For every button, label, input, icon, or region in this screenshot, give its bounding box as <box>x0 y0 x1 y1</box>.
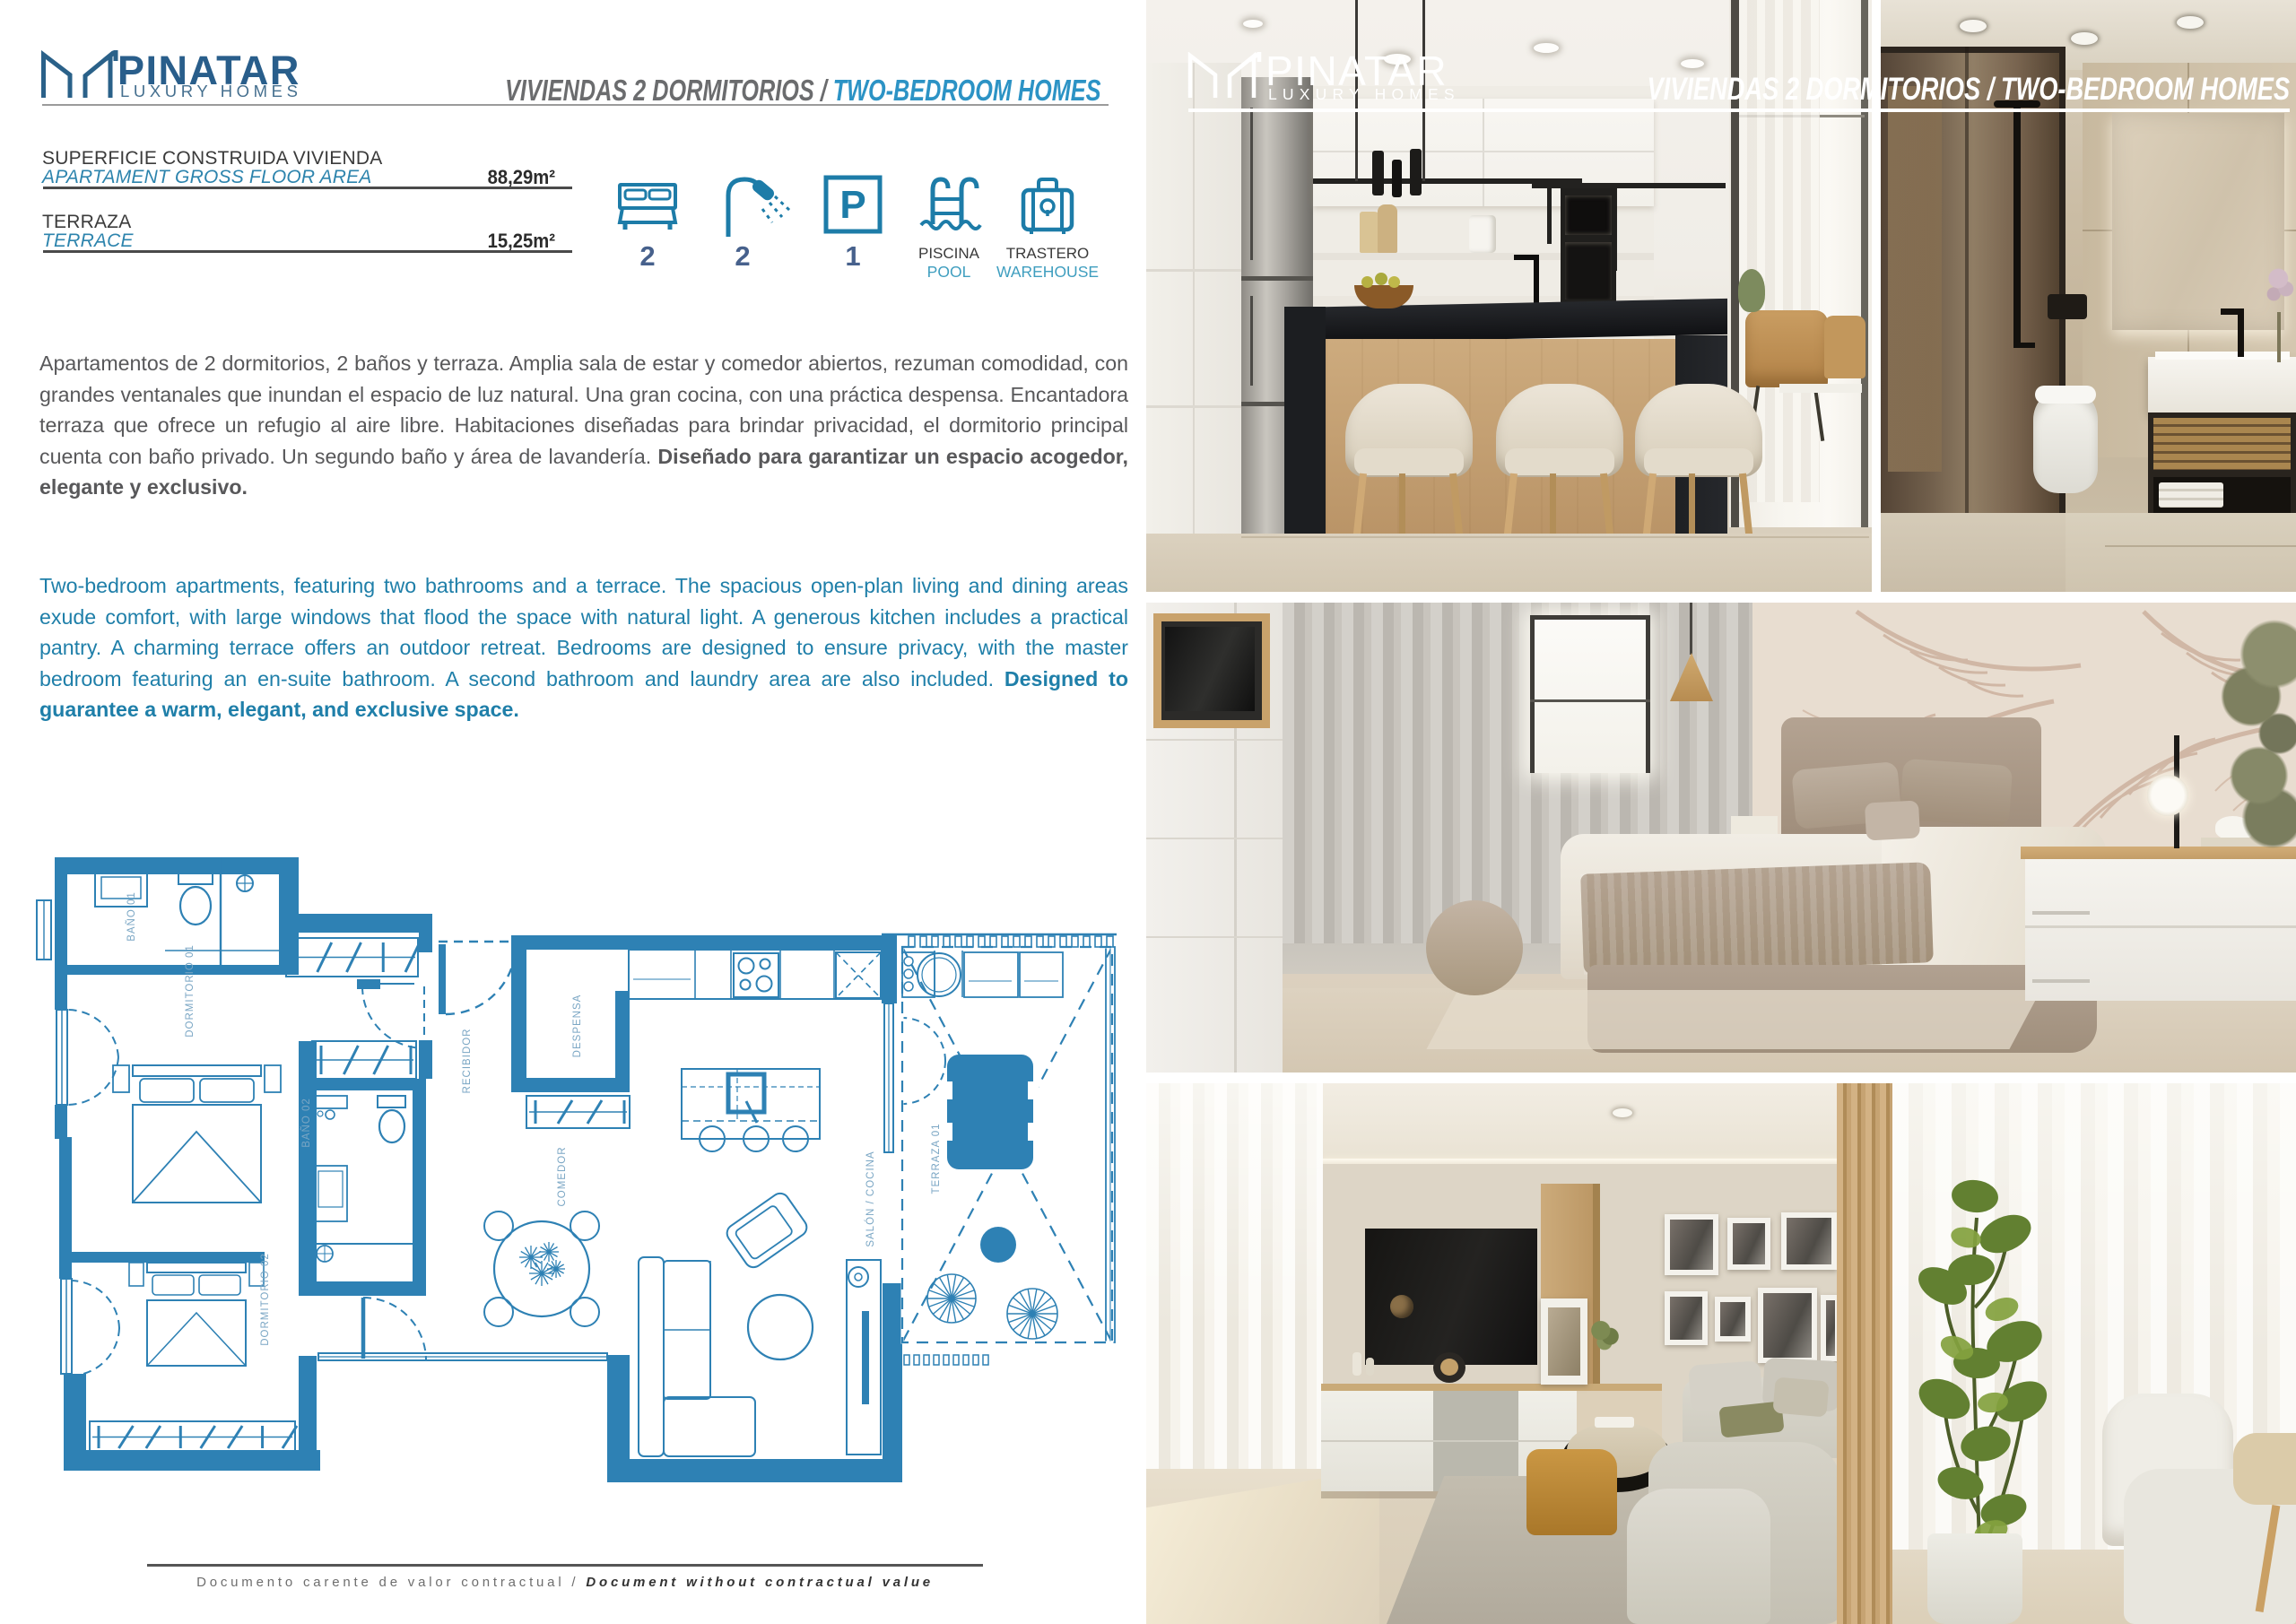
svg-text:1: 1 <box>845 240 860 272</box>
svg-text:TERRAZA 01: TERRAZA 01 <box>931 1123 942 1194</box>
svg-text:2: 2 <box>639 240 655 272</box>
svg-text:RECIBIDOR: RECIBIDOR <box>462 1029 473 1094</box>
svg-text:COMEDOR: COMEDOR <box>557 1146 568 1206</box>
svg-text:2: 2 <box>735 240 750 272</box>
svg-text:SALÓN / COCINA: SALÓN / COCINA <box>865 1151 876 1246</box>
svg-text:POOL: POOL <box>927 263 971 281</box>
svg-text:DESPENSA: DESPENSA <box>572 994 583 1058</box>
svg-text:TRASTERO: TRASTERO <box>1006 245 1090 262</box>
svg-text:DORMITORIO 01: DORMITORIO 01 <box>185 944 196 1038</box>
svg-text:PISCINA: PISCINA <box>918 245 980 262</box>
svg-text:BAÑO 01: BAÑO 01 <box>126 891 137 942</box>
svg-text:BAÑO 02: BAÑO 02 <box>300 1098 312 1148</box>
svg-text:WAREHOUSE: WAREHOUSE <box>996 263 1099 281</box>
svg-text:DORMITORIO 02: DORMITORIO 02 <box>260 1253 271 1346</box>
svg-text:P: P <box>839 183 865 227</box>
